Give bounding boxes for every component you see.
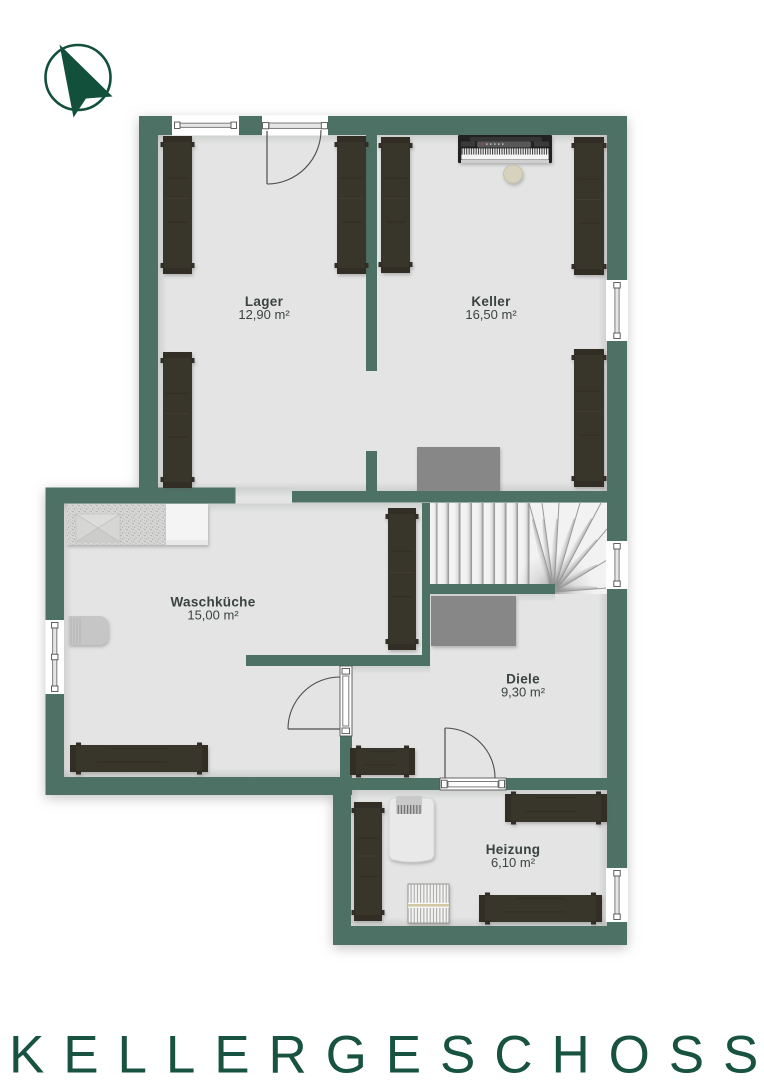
- svg-text:KELLERGESCHOSS: KELLERGESCHOSS: [9, 1026, 764, 1080]
- svg-text:16,50 m²: 16,50 m²: [465, 307, 517, 322]
- svg-text:12,90 m²: 12,90 m²: [238, 307, 290, 322]
- svg-text:15,00 m²: 15,00 m²: [187, 608, 239, 623]
- svg-text:6,10 m²: 6,10 m²: [491, 855, 536, 870]
- svg-text:9,30 m²: 9,30 m²: [501, 685, 546, 700]
